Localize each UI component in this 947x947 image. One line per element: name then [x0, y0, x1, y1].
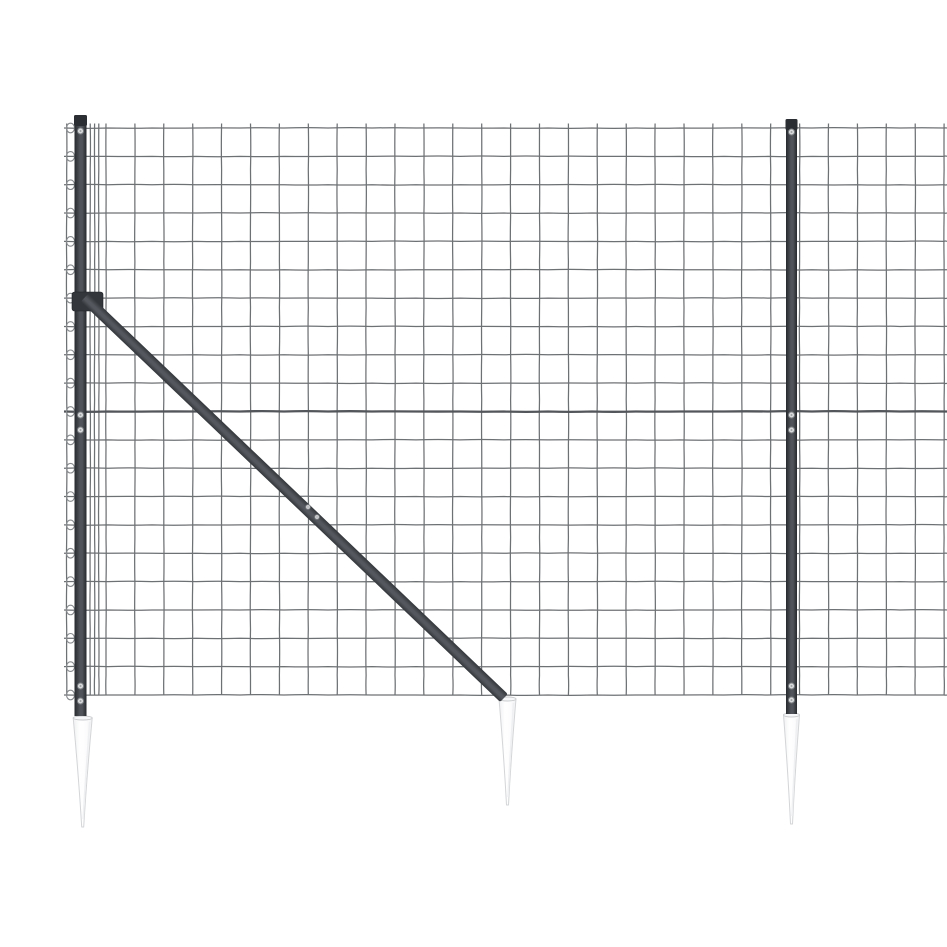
ground-spike-middle	[499, 697, 516, 805]
screw-center-dot	[791, 699, 793, 701]
screw-center-dot	[791, 131, 793, 133]
mesh-horizontal-wire	[64, 468, 947, 469]
screw-center-dot	[80, 130, 82, 132]
mesh-vertical-wire	[684, 124, 685, 696]
mesh-horizontal-wire	[64, 156, 947, 157]
screw-center-dot	[316, 516, 317, 517]
mesh-horizontal-wire	[64, 184, 947, 185]
screw-center-dot	[80, 414, 82, 416]
spike-top-rim	[73, 716, 92, 720]
fence-scene-svg	[0, 0, 947, 947]
mesh-horizontal-wire	[64, 354, 947, 355]
mesh-horizontal-wire	[64, 610, 947, 611]
screw-center-dot	[791, 414, 793, 416]
mesh-horizontal-wire	[64, 666, 947, 667]
screw-center-dot	[80, 700, 82, 702]
mesh-vertical-wire	[106, 124, 107, 696]
mesh-edge-wire	[90, 124, 91, 696]
mesh-vertical-wire	[655, 124, 656, 696]
mesh-horizontal-wire	[64, 581, 947, 582]
mesh-vertical-wire	[597, 124, 598, 696]
mesh-vertical-wire	[626, 124, 627, 696]
mesh-vertical-wire	[481, 124, 482, 696]
mesh-horizontal-wire	[64, 213, 947, 214]
screw-center-dot	[791, 429, 793, 431]
fence-post-left	[74, 115, 87, 716]
mesh-horizontal-wire	[64, 383, 947, 384]
mesh-edge-wire	[94, 124, 95, 696]
ground-spike-right	[784, 713, 800, 824]
ground-spike-left	[73, 716, 92, 827]
screw-center-dot	[80, 429, 82, 431]
product-photo-wire-mesh-fence	[0, 0, 947, 947]
mesh-horizontal-wire	[64, 439, 947, 440]
mesh-vertical-wire	[192, 124, 193, 696]
screw-center-dot	[307, 506, 308, 507]
mesh-edge-wire	[99, 124, 100, 696]
mesh-vertical-wire	[944, 124, 945, 696]
mesh-horizontal-wire	[64, 496, 947, 497]
mesh-horizontal-wire	[64, 553, 947, 554]
mesh-horizontal-wire	[64, 128, 947, 129]
mesh-vertical-wire	[568, 124, 569, 696]
mesh-horizontal-wire	[64, 638, 947, 639]
mesh-horizontal-wire	[64, 326, 947, 327]
screw-center-dot	[80, 685, 82, 687]
mesh-horizontal-wire	[64, 241, 947, 242]
mesh-vertical-wire	[164, 124, 165, 696]
mesh-vertical-wire	[510, 124, 511, 696]
mesh-horizontal-wire	[64, 298, 947, 299]
mesh-horizontal-wire	[64, 269, 947, 270]
post-top-cap	[74, 115, 87, 126]
screw-center-dot	[791, 685, 793, 687]
post-top-cap	[786, 119, 798, 130]
mesh-vertical-wire	[713, 124, 714, 696]
mesh-vertical-wire	[135, 124, 136, 696]
fence-post-right	[786, 119, 798, 714]
mesh-horizontal-wire	[64, 525, 947, 526]
mesh-vertical-wire	[539, 124, 540, 696]
